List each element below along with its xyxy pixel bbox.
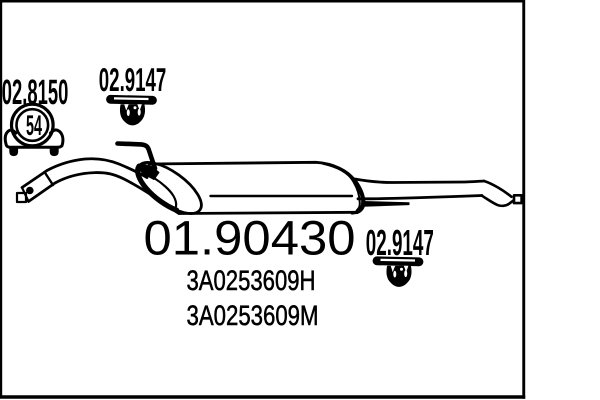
svg-text:3A0253609H: 3A0253609H <box>187 264 316 296</box>
svg-text:02.8150: 02.8150 <box>2 73 69 112</box>
svg-text:02.9147: 02.9147 <box>99 61 167 98</box>
svg-text:54: 54 <box>26 110 42 142</box>
svg-text:3A0253609M: 3A0253609M <box>187 299 319 331</box>
svg-text:01.90430: 01.90430 <box>144 212 356 266</box>
